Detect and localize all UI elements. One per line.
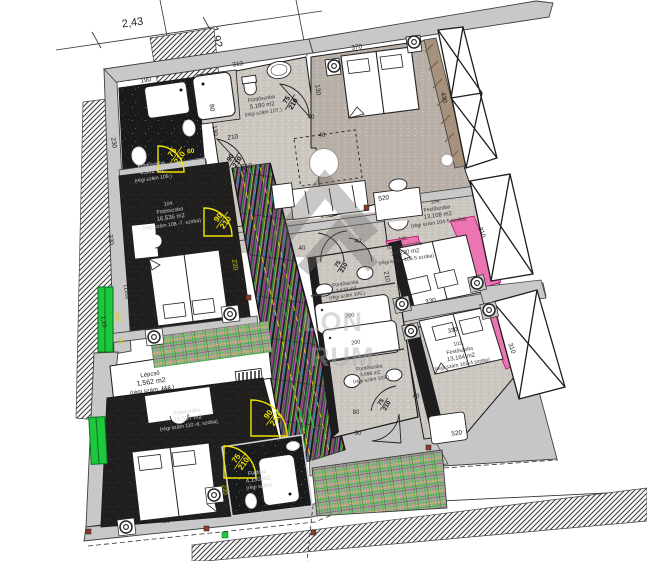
svg-text:40: 40 — [319, 133, 326, 139]
svg-text:40: 40 — [355, 239, 362, 245]
svg-text:40: 40 — [413, 394, 420, 400]
svg-text:40: 40 — [308, 115, 315, 121]
svg-text:80: 80 — [353, 410, 360, 416]
svg-text:520: 520 — [451, 429, 463, 437]
svg-text:40: 40 — [299, 246, 306, 252]
svg-text:90: 90 — [355, 431, 362, 437]
svg-text:60: 60 — [187, 147, 196, 155]
svg-text:80: 80 — [208, 104, 216, 113]
svg-text:460: 460 — [159, 517, 171, 525]
svg-text:400: 400 — [257, 444, 268, 450]
svg-text:LON: LON — [303, 307, 363, 337]
